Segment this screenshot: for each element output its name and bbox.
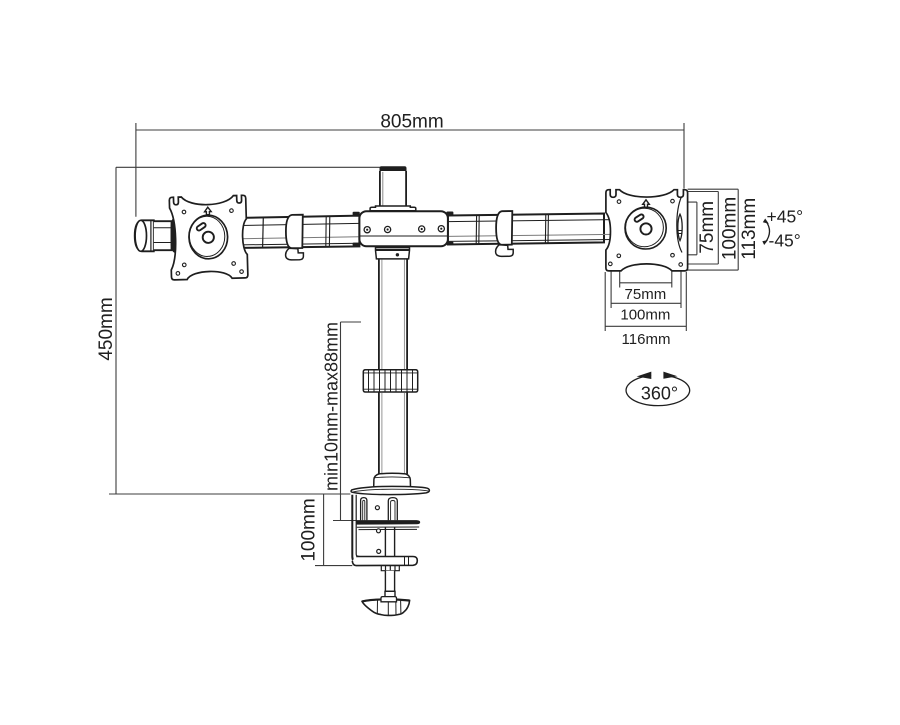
svg-text:-45°: -45°: [769, 231, 801, 251]
svg-text:75mm: 75mm: [625, 286, 667, 303]
svg-text:100mm: 100mm: [719, 197, 740, 260]
svg-text:100mm: 100mm: [299, 498, 320, 561]
svg-text:75mm: 75mm: [697, 201, 718, 254]
svg-text:360°: 360°: [641, 384, 678, 404]
svg-text:min10mm-max88mm: min10mm-max88mm: [321, 322, 341, 491]
svg-text:+45°: +45°: [767, 207, 804, 227]
svg-text:116mm: 116mm: [622, 331, 671, 348]
svg-text:450mm: 450mm: [96, 297, 117, 360]
svg-text:113mm: 113mm: [739, 198, 760, 260]
svg-text:805mm: 805mm: [380, 112, 443, 133]
svg-text:100mm: 100mm: [620, 307, 670, 324]
